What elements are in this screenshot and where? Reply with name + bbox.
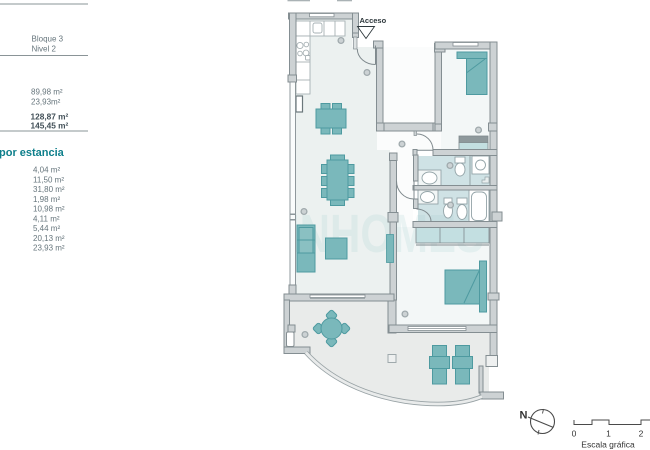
svg-text:Nivel 2: Nivel 2	[32, 45, 57, 54]
svg-text:20,13 m²: 20,13 m²	[33, 234, 65, 243]
svg-text:23,93 m²: 23,93 m²	[33, 244, 65, 253]
svg-text:Acceso: Acceso	[360, 16, 387, 25]
svg-text:4,04 m²: 4,04 m²	[33, 166, 60, 175]
svg-text:89,98 m²: 89,98 m²	[31, 88, 63, 97]
svg-text:10,98 m²: 10,98 m²	[33, 205, 65, 214]
svg-text:5,44 m²: 5,44 m²	[33, 224, 60, 233]
svg-text:Escala gráfica: Escala gráfica	[581, 440, 635, 450]
svg-text:2: 2	[639, 429, 644, 439]
svg-text:11,50 m²: 11,50 m²	[33, 175, 64, 184]
svg-text:N: N	[520, 410, 528, 422]
svg-text:23,93m²: 23,93m²	[31, 98, 61, 107]
svg-text:31,80 m²: 31,80 m²	[33, 185, 65, 194]
svg-text:1: 1	[606, 429, 611, 439]
svg-text:4,11 m²: 4,11 m²	[33, 214, 60, 223]
svg-text:145,45 m²: 145,45 m²	[31, 121, 69, 131]
svg-text:Bloque 3: Bloque 3	[32, 35, 64, 44]
svg-text:0: 0	[572, 429, 577, 439]
svg-text:por estancia: por estancia	[0, 147, 65, 159]
svg-text:1,98 m²: 1,98 m²	[33, 195, 60, 204]
